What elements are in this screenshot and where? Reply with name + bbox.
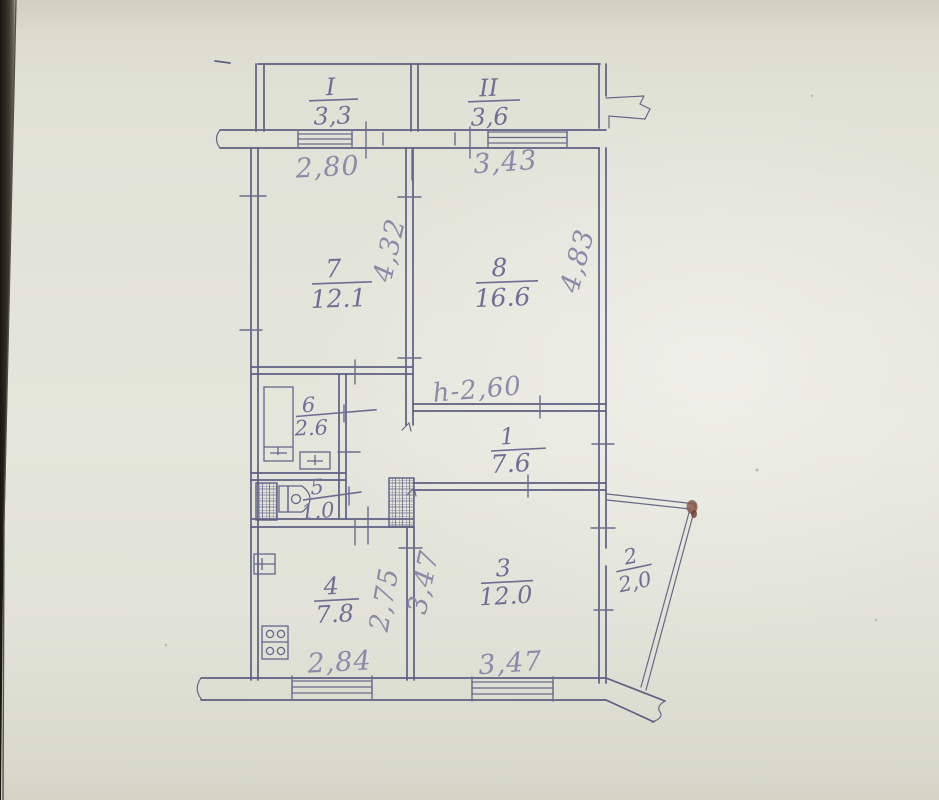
bathtub	[264, 387, 293, 461]
stove	[262, 626, 288, 659]
balcony2-area: 3,6	[470, 102, 509, 131]
dim-room3-height: 3,47	[402, 548, 446, 617]
window-kitchen-bottom	[292, 676, 372, 700]
dim-top-left: 2,80	[294, 150, 361, 184]
dimension-ticks	[240, 122, 615, 610]
room6-area: 2.6	[293, 415, 328, 440]
wall-room7-bottom	[251, 367, 413, 374]
wall-bath-corridor	[339, 374, 346, 519]
left-wall	[251, 148, 258, 680]
balcony-right-wall	[599, 64, 606, 128]
balcony-divider-wall	[411, 64, 418, 131]
label-room-1: 1 7.6	[489, 422, 548, 479]
label-room-7: 7 12.1	[309, 253, 373, 314]
dim-top-right: 3,43	[472, 145, 538, 180]
bottom-facade-right-cut	[652, 701, 665, 722]
label-room-2: 2 2,0	[610, 541, 657, 598]
room1-area: 7.6	[490, 448, 531, 479]
room1-number: 1	[499, 424, 515, 451]
floor-plan-photo: I 3,3 II 3,6 7 12.1 8 16.6	[0, 0, 939, 800]
label-room-4: 4 7.8	[313, 571, 361, 629]
label-room-8: 8 16.6	[473, 252, 539, 313]
vent-shaft-toilet	[256, 483, 277, 520]
bathroom-sink	[300, 452, 330, 469]
wall-bath-toilet	[251, 473, 346, 480]
paper-edge-line	[3, 0, 16, 800]
label-balcony-1: I 3,3	[308, 72, 359, 131]
floor-plan-drawing: I 3,3 II 3,6 7 12.1 8 16.6	[0, 0, 939, 800]
balcony1-area: 3,3	[313, 101, 352, 130]
label-room-6: 6 2.6	[292, 391, 377, 441]
dim-bottom-left: 2,84	[306, 645, 373, 679]
vent-shaft-center	[389, 478, 414, 527]
bottom-facade-left-cut	[197, 678, 202, 700]
label-balcony-2: II 3,6	[467, 73, 521, 132]
dim-room8-height: 4,83	[554, 226, 601, 297]
room8-area: 16.6	[474, 282, 531, 313]
room8-number: 8	[491, 253, 508, 283]
wall-corridor-hall-upper	[406, 374, 413, 425]
label-room-3: 3 12.0	[477, 553, 535, 612]
room5-number: 5	[310, 475, 325, 500]
wall-stub-break	[606, 96, 650, 128]
dim-bottom-right: 3,47	[477, 646, 543, 681]
balcony-left-wall	[256, 64, 264, 131]
room7-area: 12.1	[310, 283, 367, 314]
room4-number: 4	[322, 572, 340, 601]
balcony1-number: I	[324, 73, 336, 101]
top-facade-left-cut	[217, 130, 221, 148]
bottom-facade-angle-outer	[606, 678, 665, 701]
stray-mark	[215, 61, 230, 63]
dim-kitchen-height: 2,75	[364, 565, 406, 635]
window-balcony1	[298, 130, 352, 148]
room7-number: 7	[325, 254, 342, 284]
room5-area: 1.0	[300, 498, 335, 524]
wall-hall-room3	[413, 483, 606, 490]
room6-number: 6	[301, 393, 315, 417]
room3-number: 3	[495, 554, 512, 583]
room4-area: 7.8	[315, 599, 355, 629]
room2-number: 2	[621, 543, 640, 569]
balcony2-number: II	[478, 74, 499, 103]
wall-room7-room8	[406, 148, 413, 374]
room3-area: 12.0	[478, 581, 533, 612]
bottom-facade-angle-inner	[606, 700, 654, 722]
right-wall-upper	[599, 148, 606, 683]
